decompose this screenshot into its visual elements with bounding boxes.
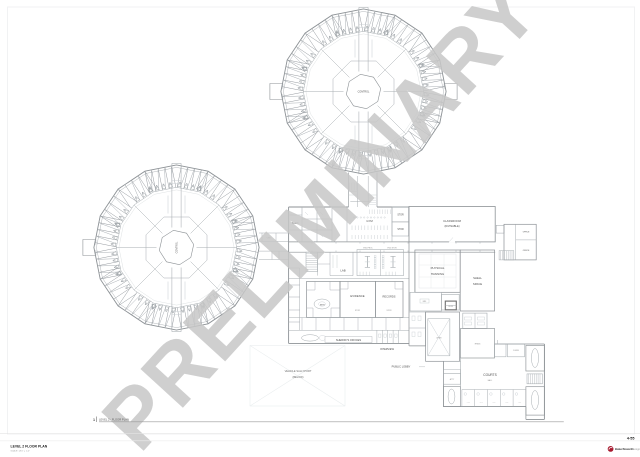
- svg-text:STOR: STOR: [355, 310, 361, 312]
- svg-text:SHELL: SHELL: [473, 276, 482, 280]
- svg-text:SPACE: SPACE: [473, 282, 482, 286]
- svg-text:BakerNowicki: BakerNowicki: [615, 447, 634, 451]
- svg-text:PHYSICAL: PHYSICAL: [431, 266, 445, 270]
- svg-text:CONTROL: CONTROL: [176, 241, 179, 253]
- svg-text:CLASSROOM: CLASSROOM: [443, 219, 462, 223]
- svg-text:TRAINING: TRAINING: [431, 272, 444, 276]
- svg-text:CLERK: CLERK: [513, 350, 520, 352]
- svg-text:Design: Design: [632, 447, 640, 451]
- svg-text:HRNG: HRNG: [475, 344, 481, 346]
- svg-text:LAB: LAB: [340, 269, 345, 273]
- svg-text:1: 1: [93, 418, 95, 422]
- svg-text:EVID PROC: EVID PROC: [363, 247, 373, 249]
- svg-text:EVIDENCE: EVIDENCE: [350, 294, 364, 298]
- svg-text:INTERVIEW: INTERVIEW: [380, 348, 394, 351]
- svg-text:OFFICE: OFFICE: [523, 250, 530, 252]
- svg-text:EVID STOR: EVID STOR: [387, 247, 397, 249]
- svg-text:OFFICE: OFFICE: [523, 232, 530, 234]
- svg-text:INTK: INTK: [320, 304, 326, 306]
- svg-text:STOR: STOR: [387, 310, 393, 312]
- svg-text:LEVEL 2 FLOOR PLAN: LEVEL 2 FLOOR PLAN: [11, 444, 48, 448]
- svg-text:4-55: 4-55: [627, 437, 635, 441]
- svg-text:STOR: STOR: [397, 229, 404, 231]
- svg-text:COURTS: COURTS: [483, 373, 496, 377]
- svg-text:STOR: STOR: [397, 215, 404, 217]
- svg-text:OPEN: OPEN: [436, 338, 442, 340]
